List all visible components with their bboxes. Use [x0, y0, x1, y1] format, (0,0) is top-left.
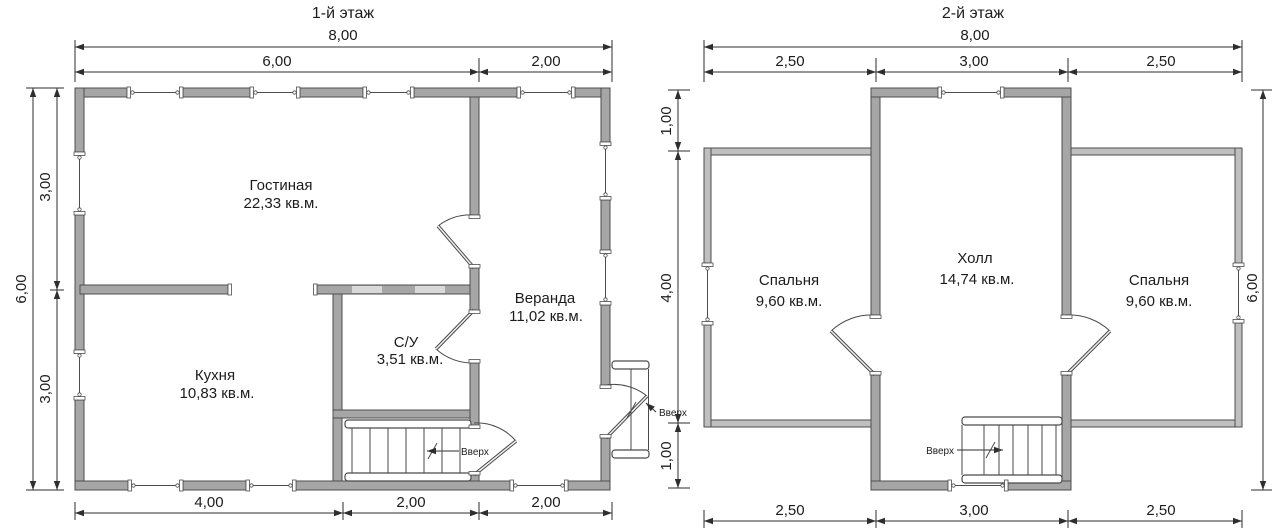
f1-walls — [75, 88, 610, 490]
room-bathroom-area: 3,51 кв.м. — [377, 351, 444, 368]
room-hall-area: 14,74 кв.м. — [940, 271, 1015, 288]
f1-stairs-up-label: Вверх — [461, 447, 489, 458]
f1-dim-bottom-kitchen: 4,00 — [194, 494, 223, 511]
f2-dim-height-total: 6,00 — [1244, 273, 1261, 302]
room-hall-name: Холл — [957, 250, 992, 267]
door-bedroom-right — [1066, 315, 1110, 375]
f2-doors — [831, 315, 1110, 375]
f2-dim-bottom-left: 2,50 — [775, 502, 804, 519]
f2-dim-width-right: 2,50 — [1146, 53, 1175, 70]
f2-dim-width-mid: 3,00 — [959, 53, 988, 70]
f1-dim-width-veranda: 2,00 — [531, 53, 560, 70]
f2-dim-height-mid: 4,00 — [658, 273, 675, 302]
floorplan-page: 1-й этаж — [0, 0, 1280, 530]
f1-doors — [436, 215, 647, 475]
f2-walls — [704, 88, 1242, 490]
f1-dimensions: 8,00 6,00 2,00 6,00 3,00 3,00 4,00 — [13, 27, 612, 520]
f1-dim-height-upper: 3,00 — [37, 172, 54, 201]
room-bedroom-right-name: Спальня — [1129, 272, 1189, 289]
room-veranda-area: 11,02 кв.м. — [509, 308, 583, 325]
f1-dim-height-lower: 3,00 — [37, 374, 54, 403]
floor2-title: 2-й этаж — [942, 5, 1004, 22]
door-living-veranda — [438, 215, 474, 268]
door-entry — [606, 384, 647, 438]
floorplan-drawing: 1-й этаж — [0, 0, 1280, 530]
f2-dim-width-left: 2,50 — [775, 53, 804, 70]
f1-dim-height-total: 6,00 — [13, 274, 30, 303]
f2-dim-height-top: 1,00 — [658, 106, 675, 135]
room-kitchen-name: Кухня — [195, 367, 235, 384]
f2-dim-bottom-mid: 3,00 — [959, 502, 988, 519]
f1-dim-width-total: 8,00 — [328, 27, 357, 44]
room-bathroom-name: С/У — [394, 334, 419, 351]
f2-dim-height-bottom: 1,00 — [658, 441, 675, 470]
room-living-name: Гостиная — [250, 177, 313, 194]
floor1-title: 1-й этаж — [312, 5, 374, 22]
f1-dim-bottom-stairs: 2,00 — [396, 494, 425, 511]
room-veranda-name: Веранда — [515, 290, 576, 307]
f2-dim-width-total: 8,00 — [960, 27, 989, 44]
f1-stairs: Вверх — [345, 420, 489, 481]
f1-entry-stairs: Вверх — [612, 361, 687, 458]
door-bedroom-left — [831, 315, 875, 375]
room-kitchen-area: 10,83 кв.м. — [180, 385, 255, 402]
f2-stairs-up-label: Вверх — [926, 446, 954, 457]
floor1-plan: 1-й этаж — [13, 5, 687, 520]
f2-dim-bottom-right: 2,50 — [1146, 502, 1175, 519]
room-bedroom-right-area: 9,60 кв.м. — [1126, 293, 1193, 310]
room-bedroom-left-area: 9,60 кв.м. — [756, 293, 823, 310]
room-living-area: 22,33 кв.м. — [244, 195, 319, 212]
f2-room-labels: Спальня 9,60 кв.м. Холл 14,74 кв.м. Спал… — [756, 250, 1193, 310]
f1-dim-width-main: 6,00 — [262, 53, 291, 70]
floor2-plan: 2-й этаж — [658, 5, 1272, 528]
f1-entry-up-label: Вверх — [659, 408, 687, 419]
room-bedroom-left-name: Спальня — [759, 272, 819, 289]
f1-dim-bottom-veranda: 2,00 — [531, 494, 560, 511]
